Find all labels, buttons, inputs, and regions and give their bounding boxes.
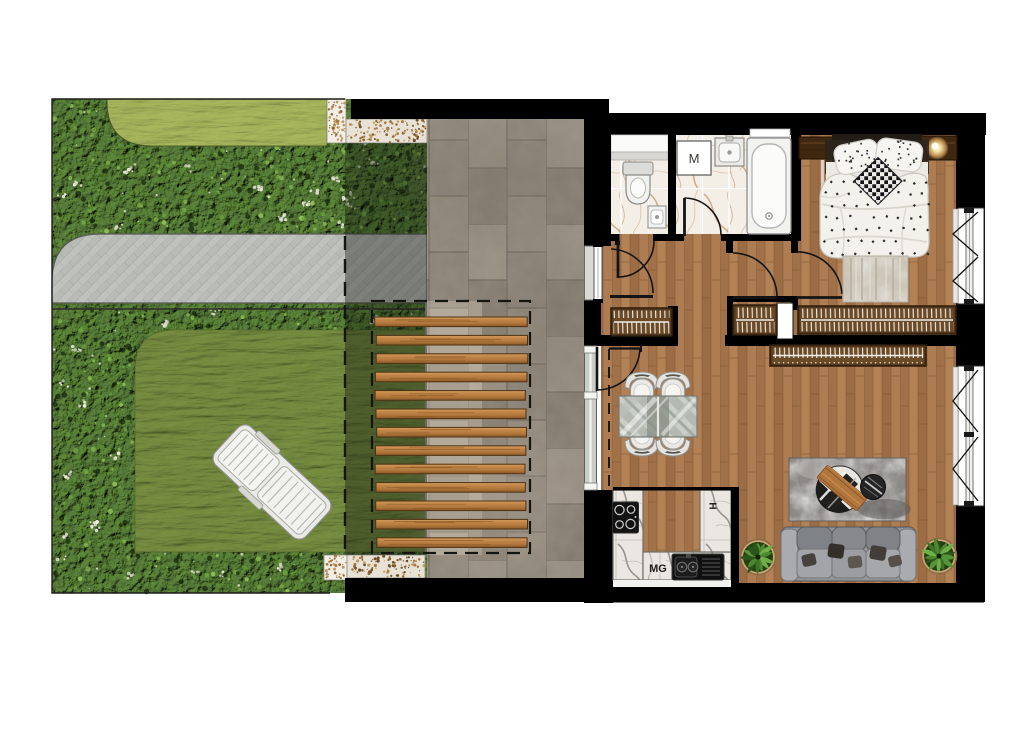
svg-text:M: M (689, 151, 700, 166)
svg-text:H: H (707, 502, 718, 509)
svg-text:MG: MG (649, 563, 667, 575)
